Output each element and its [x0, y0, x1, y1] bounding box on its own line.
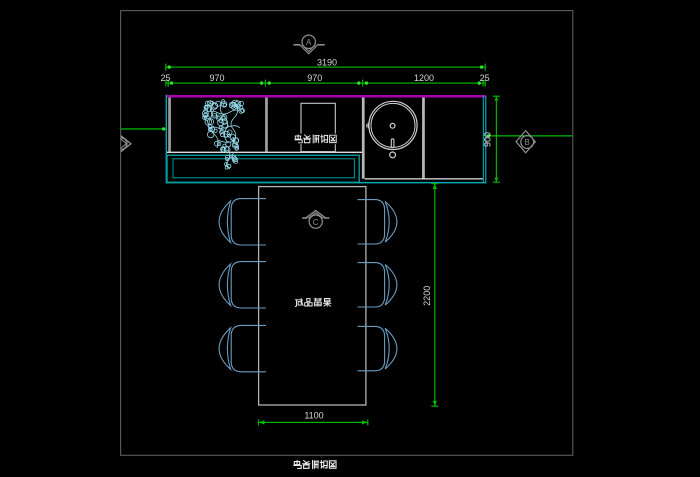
- svg-text:2200: 2200: [422, 286, 432, 306]
- svg-text:3190: 3190: [317, 57, 337, 67]
- svg-text:B: B: [525, 138, 530, 147]
- svg-text:25: 25: [160, 73, 170, 83]
- svg-text:1100: 1100: [304, 410, 323, 420]
- svg-text:C: C: [313, 218, 319, 227]
- svg-text:970: 970: [209, 73, 224, 83]
- svg-text:900: 900: [483, 132, 493, 147]
- svg-text:25: 25: [480, 73, 490, 83]
- svg-text:A: A: [306, 38, 312, 47]
- svg-text:1200: 1200: [414, 73, 434, 83]
- svg-text:970: 970: [307, 73, 322, 83]
